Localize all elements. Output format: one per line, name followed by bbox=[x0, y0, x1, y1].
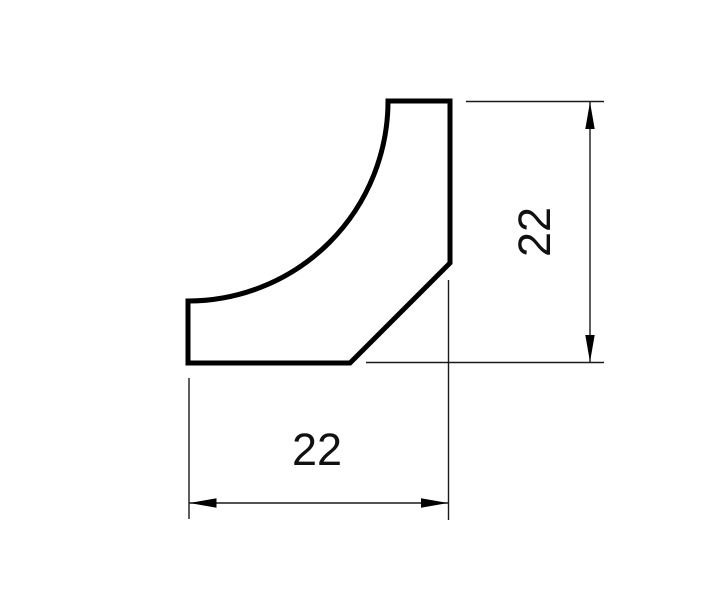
horizontal-dimension-label: 22 bbox=[292, 424, 342, 475]
arrowhead-down-icon bbox=[585, 335, 594, 362]
technical-drawing: 22 22 bbox=[0, 0, 720, 600]
arrowhead-right-icon bbox=[421, 498, 448, 507]
drawing-canvas: 22 22 bbox=[0, 0, 720, 600]
arrowhead-up-icon bbox=[585, 102, 594, 129]
part-outline bbox=[188, 101, 450, 363]
vertical-dimension-label: 22 bbox=[509, 207, 560, 257]
arrowhead-left-icon bbox=[190, 498, 217, 507]
